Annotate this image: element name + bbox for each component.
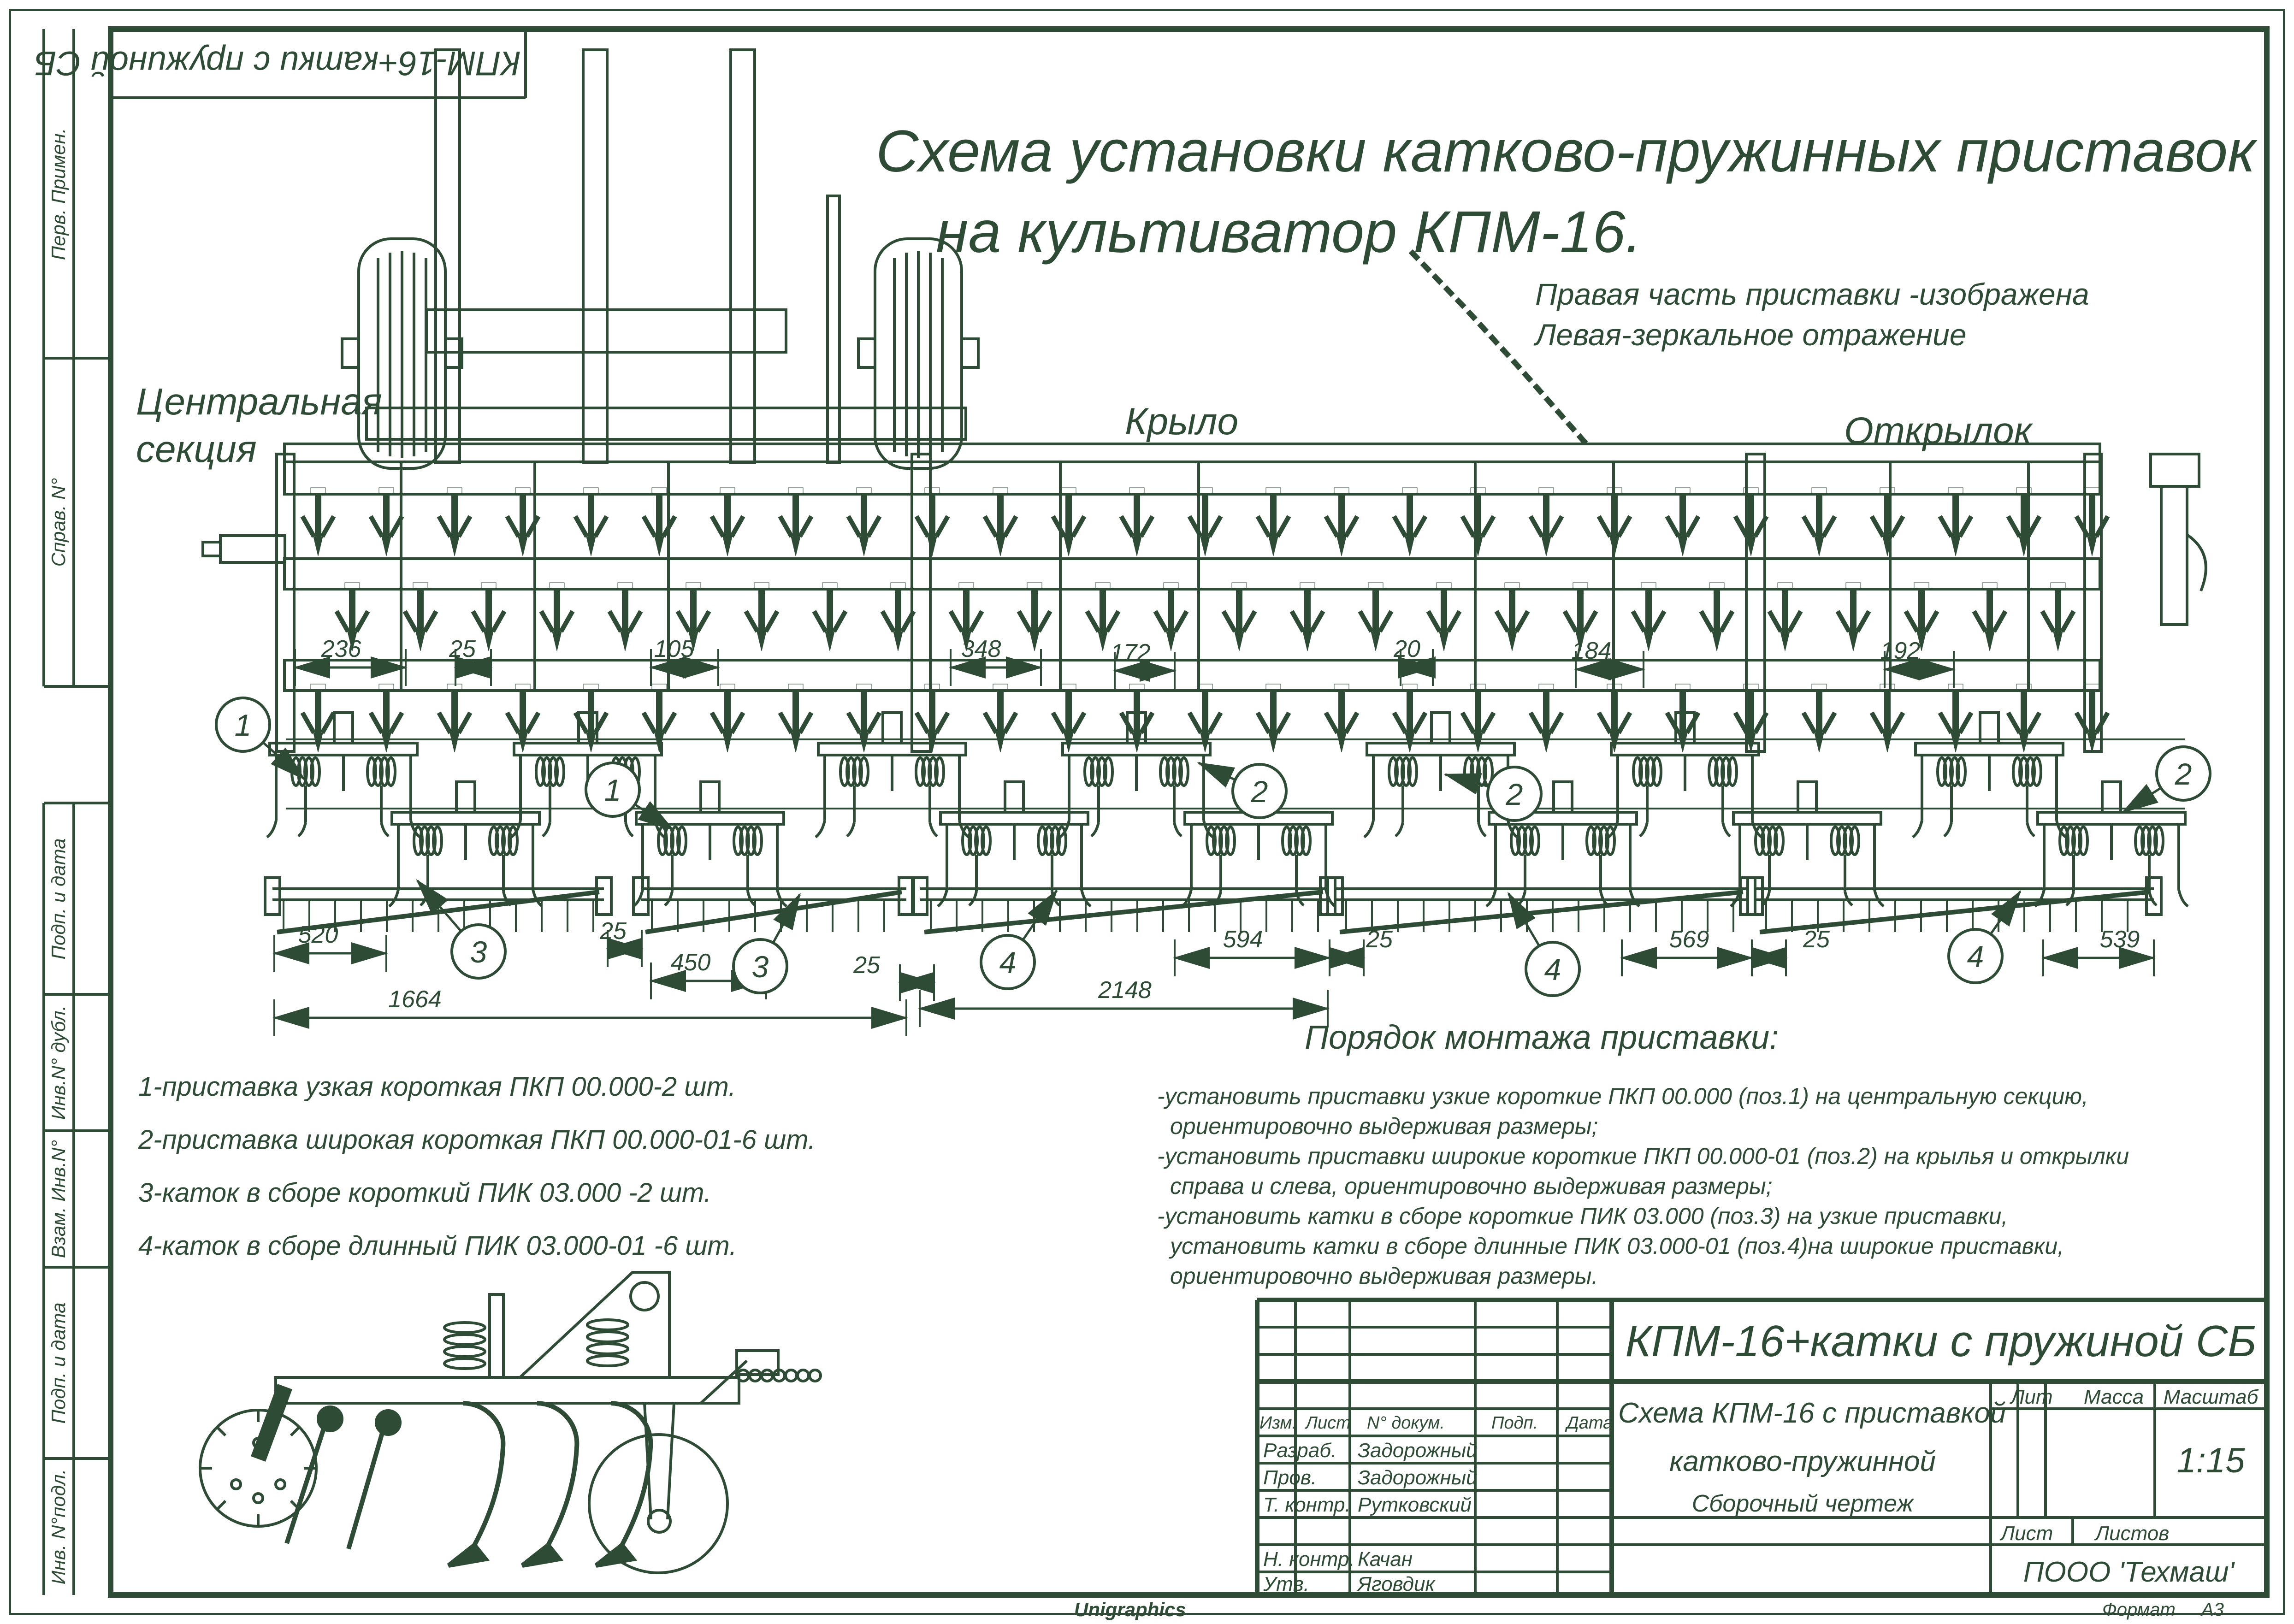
tb-col-podp: Подп.: [1491, 1413, 1538, 1433]
margin-label-sprav-n: Справ. N°: [44, 384, 73, 661]
svg-text:2: 2: [2175, 757, 2192, 791]
svg-text:1: 1: [604, 773, 621, 807]
tb-doc-number: КПМ-16+катки с пружиной СБ: [1623, 1316, 2259, 1367]
roller-segment: [1328, 878, 1755, 932]
dimension-label: 520: [298, 921, 338, 949]
roller-segment: [1748, 878, 2161, 932]
tb-col-izm: Изм.: [1259, 1413, 1297, 1433]
cultivator-tine: [473, 583, 504, 651]
dimension-label: 594: [1223, 926, 1263, 953]
montage-line: установить катки в сборе длинные ПИК 03.…: [1157, 1231, 2129, 1261]
spring-attachment-unit: [816, 713, 969, 837]
tb-row-utv-role: Утв.: [1263, 1573, 1309, 1596]
dimension-label: 569: [1669, 926, 1709, 953]
dimension-label: 184: [1572, 637, 1612, 665]
montage-line: -установить приставки узкие короткие ПКП…: [1157, 1081, 2129, 1111]
cultivator-tine: [1735, 488, 1767, 556]
dimension-label: 348: [961, 635, 1001, 663]
label-outer-wing: Открылок: [1844, 409, 2032, 453]
tb-row-utv-name: Яговдик: [1358, 1573, 1435, 1596]
cultivator-side-view: [200, 1272, 821, 1573]
cultivator-tine: [1326, 488, 1357, 556]
parts-note-line: 2-приставка широкая короткая ПКП 00.000-…: [138, 1113, 816, 1166]
callout-balloon-1: 1: [586, 763, 673, 830]
transport-wheel: [589, 1403, 727, 1573]
cultivator-tine: [1872, 684, 1903, 752]
svg-text:4: 4: [999, 945, 1017, 980]
tb-organization: ПООО 'Техмаш': [1991, 1556, 2267, 1589]
callout-balloon-2: 2: [2123, 747, 2210, 812]
label-central-section-line2: секция: [136, 428, 257, 471]
montage-line: -установить приставки широкие короткие П…: [1157, 1141, 2129, 1171]
cultivator-tine: [1803, 684, 1835, 752]
cultivator-tine: [746, 583, 777, 651]
cultivator-tine: [985, 684, 1016, 752]
cultivator-tine: [1224, 583, 1255, 651]
tb-massa-header: Масса: [2073, 1386, 2155, 1409]
cultivator-tine: [1053, 488, 1084, 556]
parts-note-line: 1-приставка узкая короткая ПКП 00.000-2 …: [138, 1060, 816, 1113]
montage-line: ориентировочно выдерживая размеры;: [1157, 1111, 2129, 1141]
cultivator-tine: [1189, 488, 1221, 556]
montage-heading: Порядок монтажа приставки:: [1305, 1019, 1779, 1057]
dimension-label: 25: [449, 635, 476, 663]
cultivator-tine: [575, 488, 607, 556]
tb-row-nkontr-name: Качан: [1358, 1548, 1413, 1571]
cultivator-tine: [916, 488, 948, 556]
cultivator-tine: [609, 583, 641, 651]
parts-note-line: 3-каток в сборе короткий ПИК 03.000 -2 ш…: [138, 1166, 816, 1219]
dimension-label: 25: [600, 917, 627, 945]
cultivator-tine: [1155, 583, 1187, 651]
margin-label-inv-podl: Инв. N°подл.: [44, 1402, 73, 1624]
cultivator-tine: [1701, 583, 1732, 651]
cultivator-tine: [1838, 583, 1869, 651]
cultivator-tine: [541, 583, 573, 651]
cultivator-tine: [985, 488, 1016, 556]
tb-list-label: Лист: [2001, 1522, 2053, 1545]
cultivator-tine: [2042, 583, 2074, 651]
cultivator-tine: [1531, 488, 1562, 556]
dimension-label: 192: [1880, 637, 1921, 665]
cultivator-tine: [371, 488, 402, 556]
cultivator-tine: [1258, 684, 1289, 752]
tb-name-line2: катково-пружинной: [1618, 1445, 1987, 1478]
cultivator-tine: [780, 488, 811, 556]
tb-row-prov-role: Пров.: [1263, 1466, 1317, 1489]
tb-row-razrab-role: Разраб.: [1263, 1439, 1336, 1462]
svg-text:4: 4: [1967, 939, 1984, 974]
mirror-note-line2: Левая-зеркальное отражение: [1535, 317, 1967, 352]
tb-masshtab-header: Масштаб: [2155, 1386, 2267, 1409]
spring-attachment-unit: [1913, 713, 2066, 837]
footer-app-name: Unigraphics: [1074, 1599, 1186, 1621]
tb-row-nkontr-role: Н. контр.: [1263, 1548, 1355, 1571]
right-tire: [858, 239, 978, 468]
rollers: [265, 878, 2161, 932]
drawing-sheet: 1122233444 Схема установки катково-пружи…: [0, 0, 2294, 1624]
cultivator-tine: [1667, 488, 1698, 556]
drawing-title-line1: Схема установки катково-пружинных приста…: [876, 118, 2194, 185]
dimension-label: 25: [1803, 926, 1830, 953]
drawing-title-line2: на культиватор КПМ-16.: [936, 198, 1642, 266]
margin-label-perv-primen: Перв. Примен.: [44, 56, 73, 332]
cultivator-tine: [712, 684, 743, 752]
c-shanks: [449, 1403, 650, 1565]
corner-stamp: КПМ-16+катки с пружиной СБ: [115, 44, 521, 83]
dimension-label: 2148: [1098, 976, 1152, 1004]
cultivator-tine: [1803, 488, 1835, 556]
cultivator-tine: [1974, 583, 2005, 651]
dimension-label: 172: [1111, 639, 1151, 667]
footer-format-label: Формат: [2102, 1600, 2176, 1620]
cultivator-tine: [1531, 684, 1562, 752]
tb-lit-header: Лит: [1991, 1386, 2073, 1409]
cultivator-tine: [1394, 488, 1425, 556]
cultivator-tine: [848, 488, 880, 556]
footer-format-value: A3: [2201, 1600, 2224, 1620]
mirror-note-line1: Правая часть приставки -изображена: [1535, 277, 2089, 312]
left-tire: [342, 239, 462, 468]
montage-instructions: -установить приставки узкие короткие ПКП…: [1157, 1081, 2129, 1291]
dimension-label: 25: [1366, 926, 1393, 953]
dimension-label: 105: [654, 635, 694, 663]
callout-balloon-2: 2: [1199, 763, 1286, 818]
dimension-label: 450: [671, 949, 711, 976]
cultivator-tine: [1940, 488, 1971, 556]
tine-rows: [302, 488, 2108, 752]
tb-name-line1: Схема КПМ-16 с приставкой: [1618, 1397, 1987, 1429]
cultivator-tine: [2008, 488, 2040, 556]
tb-row-prov-name: Задорожный: [1358, 1466, 1478, 1489]
dimension-label: 20: [1394, 635, 1420, 663]
dimension-label: 1664: [388, 986, 442, 1013]
cultivator-tine: [780, 684, 811, 752]
cultivator-tine: [1121, 488, 1153, 556]
cultivator-tine: [1428, 583, 1460, 651]
cultivator-tine: [2076, 488, 2108, 556]
cultivator-tine: [1258, 488, 1289, 556]
cultivator-tine: [1599, 488, 1630, 556]
spring-attachment-unit: [267, 713, 420, 837]
cultivator-tine: [1326, 684, 1357, 752]
tb-row-tkontr-role: Т. контр.: [1263, 1494, 1351, 1517]
svg-text:2: 2: [1506, 777, 1523, 811]
cultivator-tine: [1462, 488, 1494, 556]
tb-col-data: Дата: [1567, 1413, 1613, 1433]
cultivator-tine: [1769, 583, 1801, 651]
dimension-label: 539: [2100, 926, 2140, 953]
cultivator-tine: [882, 583, 914, 651]
cultivator-tine: [302, 488, 334, 556]
svg-text:3: 3: [752, 950, 769, 984]
cultivator-tine: [405, 583, 436, 651]
svg-text:3: 3: [470, 935, 487, 969]
svg-text:1: 1: [235, 708, 252, 742]
parts-notes: 1-приставка узкая короткая ПКП 00.000-2 …: [138, 1060, 816, 1272]
svg-text:2: 2: [1251, 774, 1268, 809]
tb-row-tkontr-name: Рутковский: [1358, 1494, 1472, 1517]
cultivator-tine: [439, 488, 470, 556]
cultivator-tine: [644, 488, 675, 556]
montage-line: -установить катки в сборе короткие ПИК 0…: [1157, 1201, 2129, 1231]
cultivator-tine: [439, 684, 470, 752]
cultivator-tine: [1496, 583, 1528, 651]
callout-balloon-3: 3: [417, 880, 505, 978]
cultivator-tine: [1360, 583, 1391, 651]
montage-line: ориентировочно выдерживая размеры.: [1157, 1261, 2129, 1291]
dimension-label: 25: [853, 951, 880, 979]
cultivator-tine: [814, 583, 845, 651]
callout-balloon-4: 4: [1949, 892, 2020, 983]
cultivator-tine: [1633, 583, 1664, 651]
tb-scale-value: 1:15: [2155, 1441, 2267, 1481]
tb-row-razrab-name: Задорожный: [1358, 1439, 1478, 1462]
callout-balloon-4: 4: [981, 891, 1057, 989]
label-wing: Крыло: [1125, 400, 1238, 443]
cultivator-tine: [1872, 488, 1903, 556]
roller-segment: [633, 878, 914, 932]
label-central-section-line1: Центральная: [136, 380, 382, 424]
tb-col-list: Лист: [1306, 1413, 1351, 1433]
tb-col-ndok: N° докум.: [1367, 1413, 1445, 1433]
tb-doc-type: Сборочный чертеж: [1618, 1490, 1987, 1518]
montage-line: справа и слева, ориентировочно выдержива…: [1157, 1171, 2129, 1201]
svg-text:4: 4: [1544, 952, 1561, 986]
dimension-label: 236: [321, 635, 361, 663]
cultivator-tine: [1292, 583, 1323, 651]
cultivator-tine: [2076, 684, 2108, 752]
cultivator-tine: [712, 488, 743, 556]
parts-note-line: 4-каток в сборе длинный ПИК 03.000-01 -6…: [138, 1219, 816, 1272]
tb-listov-label: Листов: [2095, 1522, 2169, 1545]
cultivator-tine: [1019, 583, 1050, 651]
